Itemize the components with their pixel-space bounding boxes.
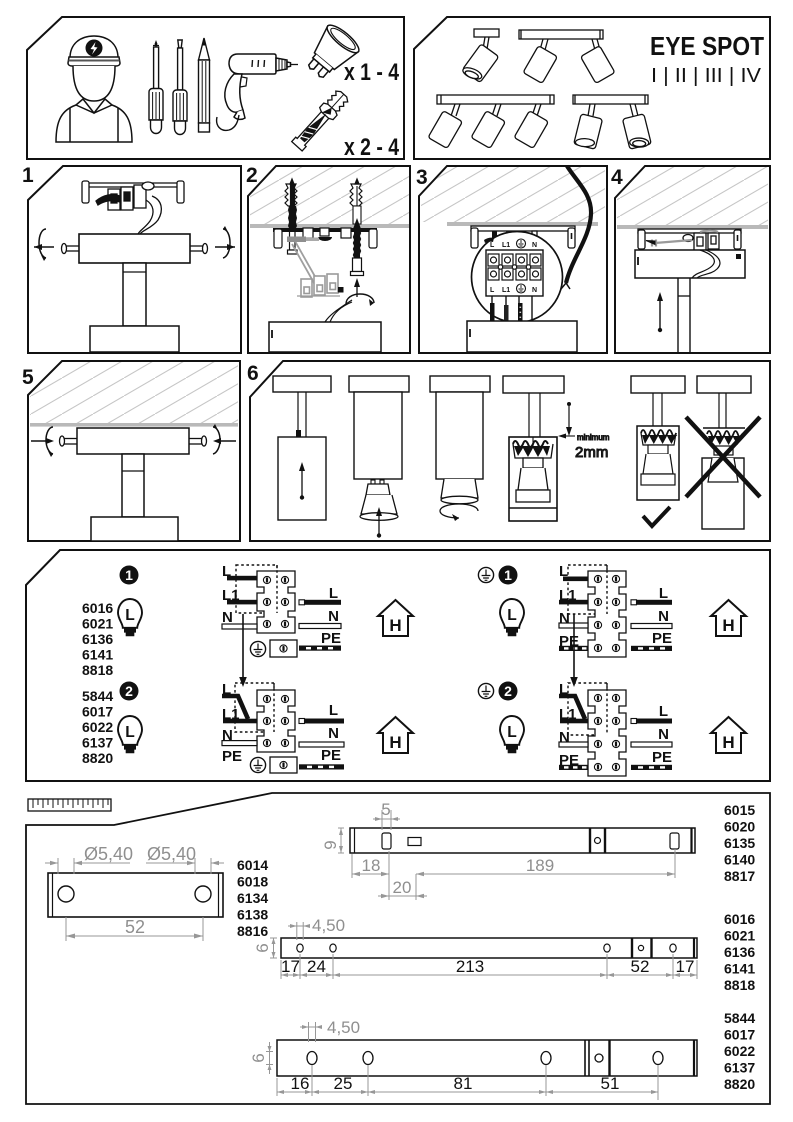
svg-text:6137: 6137 — [82, 735, 113, 751]
svg-text:6016: 6016 — [82, 600, 113, 616]
svg-text:5844: 5844 — [82, 688, 113, 704]
svg-text:4,50: 4,50 — [312, 916, 345, 935]
svg-text:6021: 6021 — [82, 616, 113, 632]
svg-text:2: 2 — [246, 164, 258, 187]
svg-text:5844: 5844 — [724, 1010, 755, 1026]
svg-text:6016: 6016 — [724, 911, 755, 927]
svg-text:6134: 6134 — [237, 890, 268, 906]
svg-text:6136: 6136 — [82, 631, 113, 647]
svg-text:25: 25 — [334, 1074, 353, 1093]
svg-text:8818: 8818 — [724, 977, 755, 993]
svg-text:L: L — [659, 585, 668, 602]
svg-text:6018: 6018 — [237, 874, 268, 890]
svg-text:1: 1 — [22, 164, 34, 187]
svg-text:PE: PE — [652, 749, 672, 766]
svg-text:8818: 8818 — [82, 662, 113, 678]
svg-text:24: 24 — [307, 957, 326, 976]
svg-text:17: 17 — [676, 957, 695, 976]
svg-text:x 2 - 4: x 2 - 4 — [344, 134, 400, 161]
svg-text:2: 2 — [125, 683, 133, 699]
svg-text:4,50: 4,50 — [327, 1018, 360, 1037]
svg-text:4: 4 — [611, 166, 623, 189]
svg-text:N: N — [532, 287, 537, 294]
svg-text:17: 17 — [281, 957, 300, 976]
svg-text:L: L — [329, 585, 338, 602]
svg-text:9: 9 — [321, 840, 340, 849]
svg-text:L: L — [329, 702, 338, 719]
svg-text:2mm: 2mm — [575, 444, 608, 461]
svg-text:1: 1 — [125, 567, 133, 583]
svg-text:18: 18 — [362, 856, 381, 875]
svg-text:1: 1 — [504, 567, 512, 583]
svg-text:Ø5,40: Ø5,40 — [84, 844, 133, 864]
svg-text:52: 52 — [125, 917, 145, 937]
svg-text:N: N — [532, 242, 537, 249]
svg-text:6137: 6137 — [724, 1060, 755, 1076]
svg-text:52: 52 — [631, 957, 650, 976]
svg-text:6022: 6022 — [724, 1043, 755, 1059]
svg-text:I | II | III | IV: I | II | III | IV — [651, 65, 762, 87]
svg-text:213: 213 — [456, 957, 484, 976]
svg-text:6021: 6021 — [724, 928, 755, 944]
svg-text:L1: L1 — [502, 287, 510, 294]
svg-text:PE: PE — [222, 748, 242, 765]
svg-text:EYE SPOT: EYE SPOT — [650, 33, 764, 61]
svg-text:PE: PE — [652, 630, 672, 647]
svg-text:N: N — [328, 725, 339, 742]
svg-text:6020: 6020 — [724, 819, 755, 835]
svg-text:2: 2 — [504, 683, 512, 699]
svg-text:6: 6 — [247, 362, 259, 385]
svg-text:L: L — [490, 287, 495, 294]
svg-text:L1: L1 — [502, 242, 510, 249]
svg-text:Ø5,40: Ø5,40 — [147, 844, 196, 864]
svg-text:6014: 6014 — [237, 857, 268, 873]
svg-text:x 1 - 4: x 1 - 4 — [344, 59, 400, 86]
svg-text:20: 20 — [393, 878, 412, 897]
svg-text:5: 5 — [22, 366, 34, 389]
svg-text:81: 81 — [454, 1074, 473, 1093]
svg-text:N: N — [658, 726, 669, 743]
svg-text:6: 6 — [249, 1053, 268, 1062]
svg-text:minimum: minimum — [577, 433, 610, 442]
svg-text:PE: PE — [321, 747, 341, 764]
svg-text:8820: 8820 — [82, 750, 113, 766]
svg-text:51: 51 — [601, 1074, 620, 1093]
svg-text:16: 16 — [291, 1074, 310, 1093]
svg-text:6: 6 — [253, 943, 272, 952]
svg-text:6140: 6140 — [724, 852, 755, 868]
svg-text:N: N — [328, 608, 339, 625]
svg-text:189: 189 — [526, 856, 554, 875]
svg-text:5: 5 — [381, 800, 390, 819]
svg-text:6141: 6141 — [82, 647, 113, 663]
svg-text:N: N — [658, 608, 669, 625]
svg-text:L: L — [659, 703, 668, 720]
svg-text:8820: 8820 — [724, 1076, 755, 1092]
svg-text:6022: 6022 — [82, 719, 113, 735]
svg-text:6135: 6135 — [724, 835, 755, 851]
svg-text:6141: 6141 — [724, 961, 755, 977]
svg-text:8816: 8816 — [237, 923, 268, 939]
svg-text:6138: 6138 — [237, 907, 268, 923]
svg-text:PE: PE — [321, 630, 341, 647]
svg-text:8817: 8817 — [724, 868, 755, 884]
svg-text:6017: 6017 — [724, 1027, 755, 1043]
svg-text:6136: 6136 — [724, 944, 755, 960]
svg-text:3: 3 — [416, 166, 428, 189]
svg-text:6015: 6015 — [724, 802, 755, 818]
svg-text:L: L — [490, 242, 495, 249]
svg-text:6017: 6017 — [82, 704, 113, 720]
